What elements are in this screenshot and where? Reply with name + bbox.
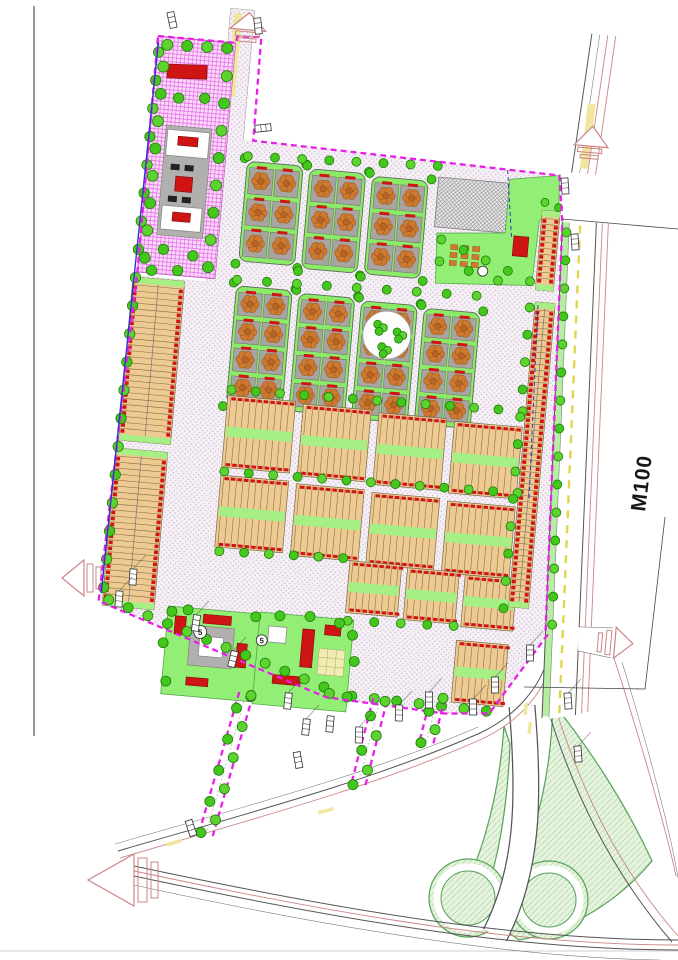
unit-label-red bbox=[544, 372, 548, 376]
tree-icon bbox=[414, 698, 425, 709]
unit-label-red bbox=[475, 577, 480, 580]
unit-label-red bbox=[530, 533, 534, 537]
unit-label-red bbox=[539, 426, 543, 430]
tree-icon bbox=[551, 508, 561, 518]
tree-icon bbox=[366, 711, 376, 721]
row-house-block bbox=[451, 640, 510, 706]
tree-icon bbox=[380, 696, 390, 706]
unit-label-red bbox=[469, 577, 474, 580]
tree-icon bbox=[499, 603, 509, 613]
tree-icon bbox=[243, 151, 253, 161]
tree-icon bbox=[351, 157, 361, 167]
unit-label-red bbox=[417, 570, 422, 573]
unit-label-red bbox=[441, 420, 446, 423]
playground-structure bbox=[460, 261, 467, 267]
unit-label-red bbox=[320, 407, 325, 410]
unit-label-red bbox=[154, 544, 158, 548]
unit-label-red bbox=[478, 571, 483, 574]
car-marker-body bbox=[492, 677, 499, 693]
tree-icon bbox=[390, 479, 400, 489]
unit-label-red bbox=[326, 488, 331, 491]
tree-icon bbox=[421, 399, 431, 409]
tree-icon bbox=[152, 115, 164, 127]
unit-label-red bbox=[528, 388, 532, 392]
facility-detail bbox=[182, 197, 191, 204]
unit-label-red bbox=[113, 493, 117, 497]
tree-icon bbox=[173, 92, 184, 103]
unit-label-red bbox=[543, 378, 547, 382]
unit-label-red bbox=[386, 565, 391, 568]
tree-icon bbox=[406, 160, 416, 170]
tree-icon bbox=[113, 441, 124, 452]
unit-label-red bbox=[414, 498, 419, 501]
facility-detail bbox=[184, 165, 193, 172]
unit-label-red bbox=[487, 701, 492, 704]
unit-label-red bbox=[514, 550, 518, 554]
tree-icon bbox=[305, 611, 316, 622]
unit-label-red bbox=[443, 572, 448, 575]
car-marker-body bbox=[527, 645, 534, 661]
unit-label-red bbox=[245, 545, 250, 548]
unit-label-red bbox=[352, 556, 357, 559]
unit-label-red bbox=[115, 463, 119, 467]
unit-label-red bbox=[541, 408, 545, 412]
tree-icon bbox=[221, 642, 232, 653]
unit-label-red bbox=[541, 402, 545, 406]
unit-label-red bbox=[554, 226, 558, 230]
tree-icon bbox=[435, 257, 445, 267]
unit-label-red bbox=[500, 702, 505, 705]
unit-label-red bbox=[244, 479, 249, 482]
tree-icon bbox=[472, 291, 482, 301]
unit-label-red bbox=[250, 479, 255, 482]
tree-icon bbox=[324, 156, 334, 166]
tree-icon bbox=[412, 287, 422, 297]
unit-label-red bbox=[172, 361, 176, 365]
unit-label-red bbox=[409, 483, 414, 486]
unit-label-red bbox=[461, 698, 466, 701]
unit-label-red bbox=[313, 406, 318, 409]
unit-label-red bbox=[158, 509, 162, 513]
tree-icon bbox=[322, 281, 332, 291]
unit-label-red bbox=[333, 408, 338, 411]
tree-icon bbox=[160, 676, 171, 687]
unit-label-red bbox=[421, 418, 426, 421]
car-marker-icon bbox=[255, 124, 272, 133]
unit-label-red bbox=[534, 323, 538, 327]
unit-label-red bbox=[527, 400, 531, 404]
car-marker-icon bbox=[426, 692, 433, 708]
tree-icon bbox=[513, 439, 523, 449]
unit-label-red bbox=[458, 423, 463, 426]
unit-label-red bbox=[488, 578, 493, 581]
tree-icon bbox=[292, 279, 302, 289]
unit-label-red bbox=[524, 442, 528, 446]
unit-label-red bbox=[169, 403, 173, 407]
unit-label-red bbox=[161, 467, 165, 471]
tree-icon bbox=[260, 658, 271, 669]
tree-icon bbox=[239, 548, 249, 558]
tree-icon bbox=[515, 412, 525, 422]
tree-icon bbox=[369, 693, 380, 704]
tree-icon bbox=[147, 170, 159, 182]
unit-label-red bbox=[313, 487, 318, 490]
unit-label-red bbox=[245, 465, 250, 468]
tree-icon bbox=[503, 549, 513, 559]
unit-label-red bbox=[283, 402, 288, 405]
unit-label-red bbox=[526, 575, 530, 579]
unit-label-red bbox=[151, 580, 155, 584]
unit-label-red bbox=[277, 468, 282, 471]
unit-label-red bbox=[540, 420, 544, 424]
unit-label-red bbox=[153, 556, 157, 560]
unit-label-red bbox=[464, 424, 469, 427]
unit-label-red bbox=[486, 644, 491, 647]
unit-label-red bbox=[411, 570, 416, 573]
tree-icon bbox=[445, 401, 455, 411]
tree-icon bbox=[210, 815, 220, 825]
tree-icon bbox=[555, 396, 565, 406]
school-court bbox=[268, 626, 287, 644]
unit-label-red bbox=[549, 280, 553, 284]
tree-icon bbox=[221, 70, 233, 82]
unit-label-red bbox=[503, 626, 508, 629]
tree-icon bbox=[162, 618, 173, 629]
public-building-red bbox=[167, 64, 207, 79]
tree-icon bbox=[342, 476, 352, 486]
tree-icon bbox=[417, 300, 427, 310]
unit-label-red bbox=[497, 573, 502, 576]
unit-label-red bbox=[524, 436, 528, 440]
unit-label-red bbox=[504, 493, 509, 496]
row-house-block bbox=[448, 421, 522, 499]
unit-label-red bbox=[353, 563, 358, 566]
tree-icon bbox=[149, 143, 161, 155]
unit-label-red bbox=[539, 255, 543, 259]
unit-label-red bbox=[537, 279, 541, 283]
unit-label-red bbox=[264, 400, 269, 403]
car-marker-body bbox=[129, 569, 137, 585]
unit-label-red bbox=[251, 546, 256, 549]
tree-icon bbox=[552, 480, 562, 490]
unit-label-red bbox=[333, 474, 338, 477]
unit-label-red bbox=[409, 563, 414, 566]
unit-label-red bbox=[251, 465, 256, 468]
unit-label-red bbox=[549, 312, 553, 316]
unit-label-red bbox=[538, 437, 542, 441]
unit-label-red bbox=[173, 355, 177, 359]
unit-label-red bbox=[332, 488, 337, 491]
unit-label-red bbox=[534, 485, 538, 489]
unit-label-red bbox=[490, 506, 495, 509]
unit-label-red bbox=[531, 521, 535, 525]
unit-label-red bbox=[516, 526, 520, 530]
unit-label-red bbox=[176, 319, 180, 323]
tree-icon bbox=[548, 592, 558, 602]
unit-label-red bbox=[477, 505, 482, 508]
unit-label-red bbox=[388, 495, 393, 498]
unit-label-red bbox=[167, 421, 171, 425]
tree-icon bbox=[227, 385, 237, 395]
unit-label-red bbox=[159, 491, 163, 495]
tree-icon bbox=[275, 388, 285, 398]
unit-label-red bbox=[546, 348, 550, 352]
tree-icon bbox=[494, 405, 504, 415]
unit-label-red bbox=[459, 489, 464, 492]
unit-label-red bbox=[471, 623, 476, 626]
unit-label-red bbox=[505, 646, 510, 649]
unit-label-red bbox=[484, 425, 489, 428]
row-house-block bbox=[441, 501, 515, 579]
unit-label-red bbox=[497, 625, 502, 628]
unit-label-red bbox=[529, 545, 533, 549]
tree-icon bbox=[556, 368, 566, 378]
unit-label-red bbox=[224, 477, 229, 480]
unit-label-red bbox=[510, 626, 515, 629]
unit-label-red bbox=[349, 608, 354, 611]
tree-icon bbox=[501, 576, 511, 586]
unit-label-red bbox=[433, 618, 438, 621]
playground-structure bbox=[471, 262, 478, 268]
unit-label-red bbox=[517, 520, 521, 524]
unit-label-red bbox=[538, 273, 542, 277]
tree-icon bbox=[459, 245, 469, 255]
unit-label-red bbox=[352, 490, 357, 493]
tree-icon bbox=[275, 610, 286, 621]
tree-icon bbox=[213, 152, 225, 164]
unit-label-red bbox=[239, 464, 244, 467]
tree-icon bbox=[348, 394, 358, 404]
unit-label-red bbox=[158, 503, 162, 507]
unit-label-red bbox=[314, 473, 319, 476]
unit-label-red bbox=[375, 494, 380, 497]
unit-label-red bbox=[518, 502, 522, 506]
unit-label-red bbox=[167, 427, 171, 431]
tree-icon bbox=[508, 494, 518, 504]
play-yard bbox=[317, 648, 345, 676]
unit-label-red bbox=[232, 464, 237, 467]
tree-icon bbox=[231, 259, 241, 269]
tree-icon bbox=[347, 630, 358, 641]
car-marker-icon bbox=[254, 18, 263, 35]
tree-icon bbox=[488, 486, 498, 496]
tree-icon bbox=[522, 330, 532, 340]
unit-label-red bbox=[383, 481, 388, 484]
tree-icon bbox=[268, 470, 278, 480]
tree-icon bbox=[161, 39, 173, 51]
unit-label-red bbox=[460, 642, 465, 645]
school-building bbox=[186, 677, 209, 687]
car-marker-body bbox=[302, 719, 311, 736]
unit-label-red bbox=[168, 415, 172, 419]
tree-icon bbox=[141, 224, 153, 236]
row-house-block bbox=[297, 404, 371, 482]
unit-label-red bbox=[492, 645, 497, 648]
unit-label-red bbox=[530, 371, 534, 375]
unit-label-red bbox=[541, 237, 545, 241]
unit-label-red bbox=[497, 427, 502, 430]
unit-label-red bbox=[451, 503, 456, 506]
unit-label-red bbox=[477, 425, 482, 428]
row-house-block bbox=[345, 561, 403, 617]
unit-label-red bbox=[277, 401, 282, 404]
unit-label-red bbox=[284, 468, 289, 471]
tree-icon bbox=[372, 396, 382, 406]
car-marker-body bbox=[564, 693, 572, 709]
unit-label-red bbox=[424, 571, 429, 574]
car-marker-icon bbox=[326, 716, 334, 733]
car-marker-body bbox=[115, 591, 123, 607]
unit-label-red bbox=[434, 499, 439, 502]
unit-label-red bbox=[306, 486, 311, 489]
unit-label-red bbox=[479, 644, 484, 647]
tree-icon bbox=[110, 469, 121, 480]
car-marker-icon bbox=[527, 645, 534, 661]
unit-label-red bbox=[540, 414, 544, 418]
unit-label-red bbox=[105, 576, 109, 580]
unit-label-red bbox=[307, 552, 312, 555]
tree-icon bbox=[107, 497, 118, 508]
unit-label-red bbox=[529, 382, 533, 386]
unit-label-red bbox=[290, 402, 295, 405]
unit-label-red bbox=[111, 517, 115, 521]
unit-label-red bbox=[450, 573, 455, 576]
unit-label-red bbox=[482, 578, 487, 581]
unit-label-red bbox=[270, 481, 275, 484]
unit-label-red bbox=[529, 539, 533, 543]
unit-label-red bbox=[535, 473, 539, 477]
unit-label-red bbox=[539, 432, 543, 436]
car-marker-body bbox=[355, 727, 363, 743]
unit-label-red bbox=[152, 568, 156, 572]
unit-label-red bbox=[369, 610, 374, 613]
unit-label-red bbox=[554, 220, 558, 224]
unit-label-red bbox=[523, 448, 527, 452]
tree-icon bbox=[181, 40, 193, 52]
unit-label-red bbox=[177, 314, 181, 318]
unit-label-red bbox=[465, 570, 470, 573]
facility-roof-red bbox=[178, 136, 199, 147]
unit-label-red bbox=[549, 274, 553, 278]
tree-icon bbox=[449, 621, 459, 631]
unit-label-red bbox=[551, 256, 555, 260]
unit-label-red bbox=[339, 489, 344, 492]
tree-icon bbox=[205, 234, 217, 246]
tree-icon bbox=[183, 604, 194, 615]
tree-icon bbox=[166, 606, 177, 617]
unit-label-red bbox=[421, 564, 426, 567]
unit-label-red bbox=[319, 487, 324, 490]
row-house-block bbox=[290, 484, 364, 562]
unit-label-red bbox=[333, 555, 338, 558]
unit-label-red bbox=[542, 219, 546, 223]
unit-label-red bbox=[271, 467, 276, 470]
unit-label-red bbox=[483, 506, 488, 509]
tree-icon bbox=[205, 796, 215, 806]
unit-label-red bbox=[178, 296, 182, 300]
tree-icon bbox=[146, 265, 157, 276]
tree-icon bbox=[139, 252, 151, 264]
tree-icon bbox=[240, 650, 251, 661]
unit-label-red bbox=[339, 409, 344, 412]
unit-label-red bbox=[495, 579, 500, 582]
park-marker bbox=[477, 266, 488, 277]
car-marker-icon bbox=[302, 719, 311, 736]
unit-label-red bbox=[548, 330, 552, 334]
unit-label-red bbox=[527, 406, 531, 410]
unit-label-red bbox=[527, 563, 531, 567]
unit-label-red bbox=[517, 514, 521, 518]
tree-icon bbox=[221, 42, 233, 54]
car-marker-body bbox=[254, 18, 263, 35]
tree-icon bbox=[464, 485, 474, 495]
unit-label-red bbox=[122, 405, 126, 409]
unit-label-red bbox=[415, 417, 420, 420]
unit-label-red bbox=[408, 497, 413, 500]
unit-label-red bbox=[484, 624, 489, 627]
tree-icon bbox=[382, 285, 392, 295]
unit-label-red bbox=[532, 503, 536, 507]
unit-label-red bbox=[225, 543, 230, 546]
playground-structure bbox=[472, 254, 479, 260]
tree-icon bbox=[207, 207, 219, 219]
unit-label-red bbox=[382, 495, 387, 498]
facility-detail bbox=[168, 195, 177, 202]
tree-icon bbox=[262, 277, 272, 287]
car-marker-body bbox=[574, 746, 582, 762]
car-marker-icon bbox=[129, 569, 137, 585]
unit-label-red bbox=[170, 391, 174, 395]
unit-label-red bbox=[481, 700, 486, 703]
tree-icon bbox=[354, 293, 364, 303]
unit-label-red bbox=[251, 399, 256, 402]
tree-icon bbox=[147, 103, 158, 114]
unit-label-red bbox=[179, 290, 183, 294]
unit-label-red bbox=[529, 376, 533, 380]
unit-label-red bbox=[452, 489, 457, 492]
unit-label-red bbox=[525, 430, 529, 434]
car-marker-icon bbox=[284, 693, 293, 710]
unit-label-red bbox=[366, 564, 371, 567]
unit-label-red bbox=[539, 261, 543, 265]
unit-label-red bbox=[170, 385, 174, 389]
unit-label-red bbox=[520, 484, 524, 488]
tree-icon bbox=[525, 276, 535, 286]
unit-label-red bbox=[524, 599, 528, 603]
unit-label-red bbox=[434, 419, 439, 422]
unit-label-red bbox=[537, 455, 541, 459]
tree-icon bbox=[493, 276, 503, 286]
unit-label-red bbox=[421, 498, 426, 501]
tree-icon bbox=[196, 828, 206, 838]
unit-label-red bbox=[428, 485, 433, 488]
unit-label-red bbox=[160, 485, 164, 489]
unit-label-red bbox=[518, 508, 522, 512]
unit-label-red bbox=[478, 624, 483, 627]
unit-label-red bbox=[326, 408, 331, 411]
unit-label-red bbox=[157, 515, 161, 519]
row-house-block bbox=[403, 568, 461, 624]
tree-icon bbox=[199, 93, 210, 104]
playground-structure bbox=[450, 252, 457, 258]
unit-label-red bbox=[464, 504, 469, 507]
unit-label-red bbox=[307, 406, 312, 409]
unit-label-red bbox=[526, 418, 530, 422]
unit-label-red bbox=[270, 401, 275, 404]
unit-label-red bbox=[490, 625, 495, 628]
unit-label-red bbox=[521, 478, 525, 482]
unit-label-red bbox=[161, 473, 165, 477]
